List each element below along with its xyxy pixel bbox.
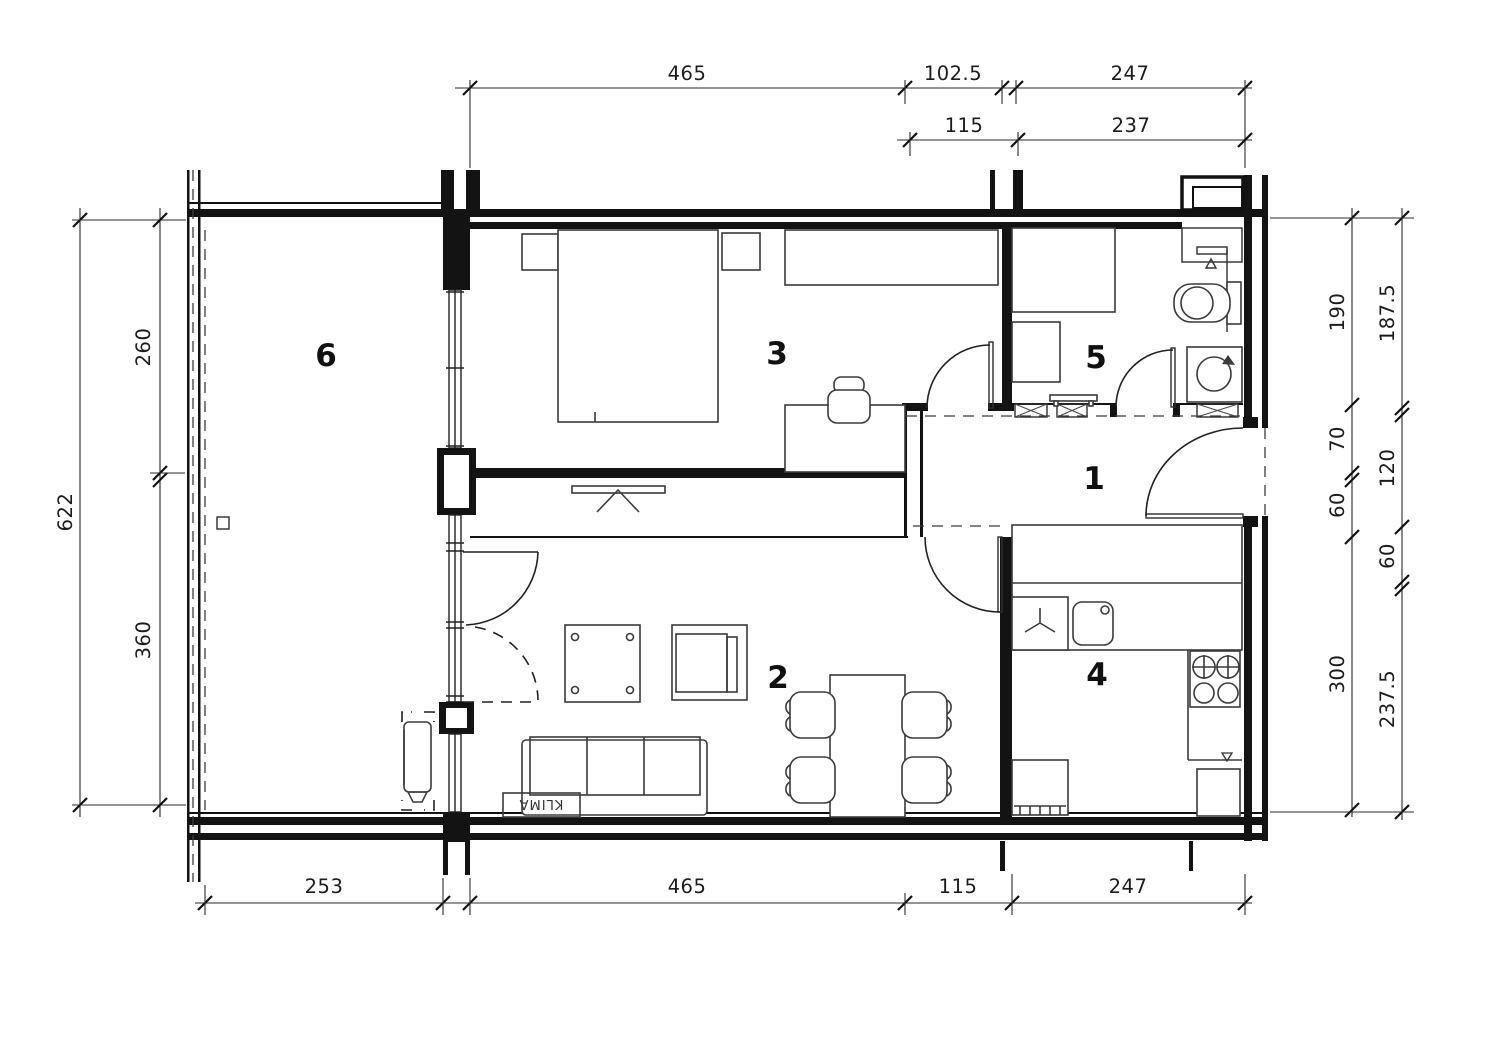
svg-text:247: 247 [1109, 875, 1148, 898]
bedroom-door [927, 342, 993, 408]
room-label-3: 3 [766, 336, 788, 372]
washbasin-cabinet [1012, 322, 1060, 382]
room-label-6: 6 [315, 338, 337, 374]
room-label-5: 5 [1085, 340, 1107, 376]
svg-text:102.5: 102.5 [924, 62, 982, 85]
svg-text:70: 70 [1326, 426, 1349, 452]
floor-plan-canvas: KLIMA 1 2 3 4 5 6 [0, 0, 1510, 1038]
floor-plan-drawing: KLIMA 1 2 3 4 5 6 [0, 0, 1510, 1038]
svg-text:60: 60 [1376, 543, 1399, 569]
svg-text:120: 120 [1376, 449, 1399, 488]
terrace-door [463, 552, 538, 702]
svg-text:360: 360 [132, 621, 155, 660]
ac-outdoor-unit [402, 712, 434, 810]
extractor-hood [1012, 597, 1068, 650]
coffee-table [565, 625, 640, 702]
terrace-railing [187, 170, 205, 882]
armchair [672, 625, 747, 700]
toilet [1174, 282, 1241, 324]
svg-text:115: 115 [939, 875, 978, 898]
sink [1073, 602, 1113, 645]
terrace-glazing-wall [437, 217, 476, 812]
lower-cabinet [1012, 760, 1068, 815]
double-bed [558, 230, 718, 422]
room-label-2: 2 [767, 660, 789, 696]
svg-text:465: 465 [668, 62, 707, 85]
wardrobe [785, 230, 998, 285]
washing-machine [1187, 347, 1242, 402]
svg-text:115: 115 [945, 114, 984, 137]
nightstand-left [522, 234, 558, 270]
nightstand-right [722, 233, 760, 270]
shower [1012, 228, 1115, 312]
klima-label: KLIMA [519, 796, 564, 811]
room-label-4: 4 [1086, 657, 1108, 693]
installation-boxes [906, 404, 1243, 526]
entry-door [1146, 428, 1265, 518]
svg-text:247: 247 [1111, 62, 1150, 85]
svg-text:237: 237 [1112, 114, 1151, 137]
svg-text:253: 253 [305, 875, 344, 898]
fridge [1197, 769, 1240, 816]
kitchen-furniture [1012, 525, 1242, 816]
dim-left-inner: 260 360 [132, 208, 185, 817]
dining-table [830, 675, 905, 817]
corridor-wardrobe [572, 486, 665, 512]
svg-text:237.5: 237.5 [1376, 670, 1399, 728]
dim-top-row2: 115 237 [897, 114, 1252, 156]
bathroom-door [1116, 348, 1175, 407]
drain [217, 517, 229, 529]
svg-text:187.5: 187.5 [1376, 284, 1399, 342]
svg-text:300: 300 [1326, 655, 1349, 694]
living-room-furniture: KLIMA [503, 625, 951, 817]
svg-text:60: 60 [1326, 492, 1349, 518]
svg-text:465: 465 [668, 875, 707, 898]
dim-bottom: 253 465 115 247 [195, 874, 1252, 915]
dim-right-inner: 190 70 60 300 [1326, 208, 1359, 817]
room-label-1: 1 [1083, 461, 1105, 497]
stove [1190, 651, 1240, 707]
terrace-items [217, 517, 434, 810]
dim-left-outer: 622 [54, 208, 186, 817]
svg-text:190: 190 [1326, 293, 1349, 332]
svg-text:622: 622 [54, 493, 77, 532]
hall-living-door [925, 537, 1002, 612]
desk-chair [828, 377, 870, 423]
bedroom-furniture [522, 230, 998, 472]
svg-text:260: 260 [132, 328, 155, 367]
